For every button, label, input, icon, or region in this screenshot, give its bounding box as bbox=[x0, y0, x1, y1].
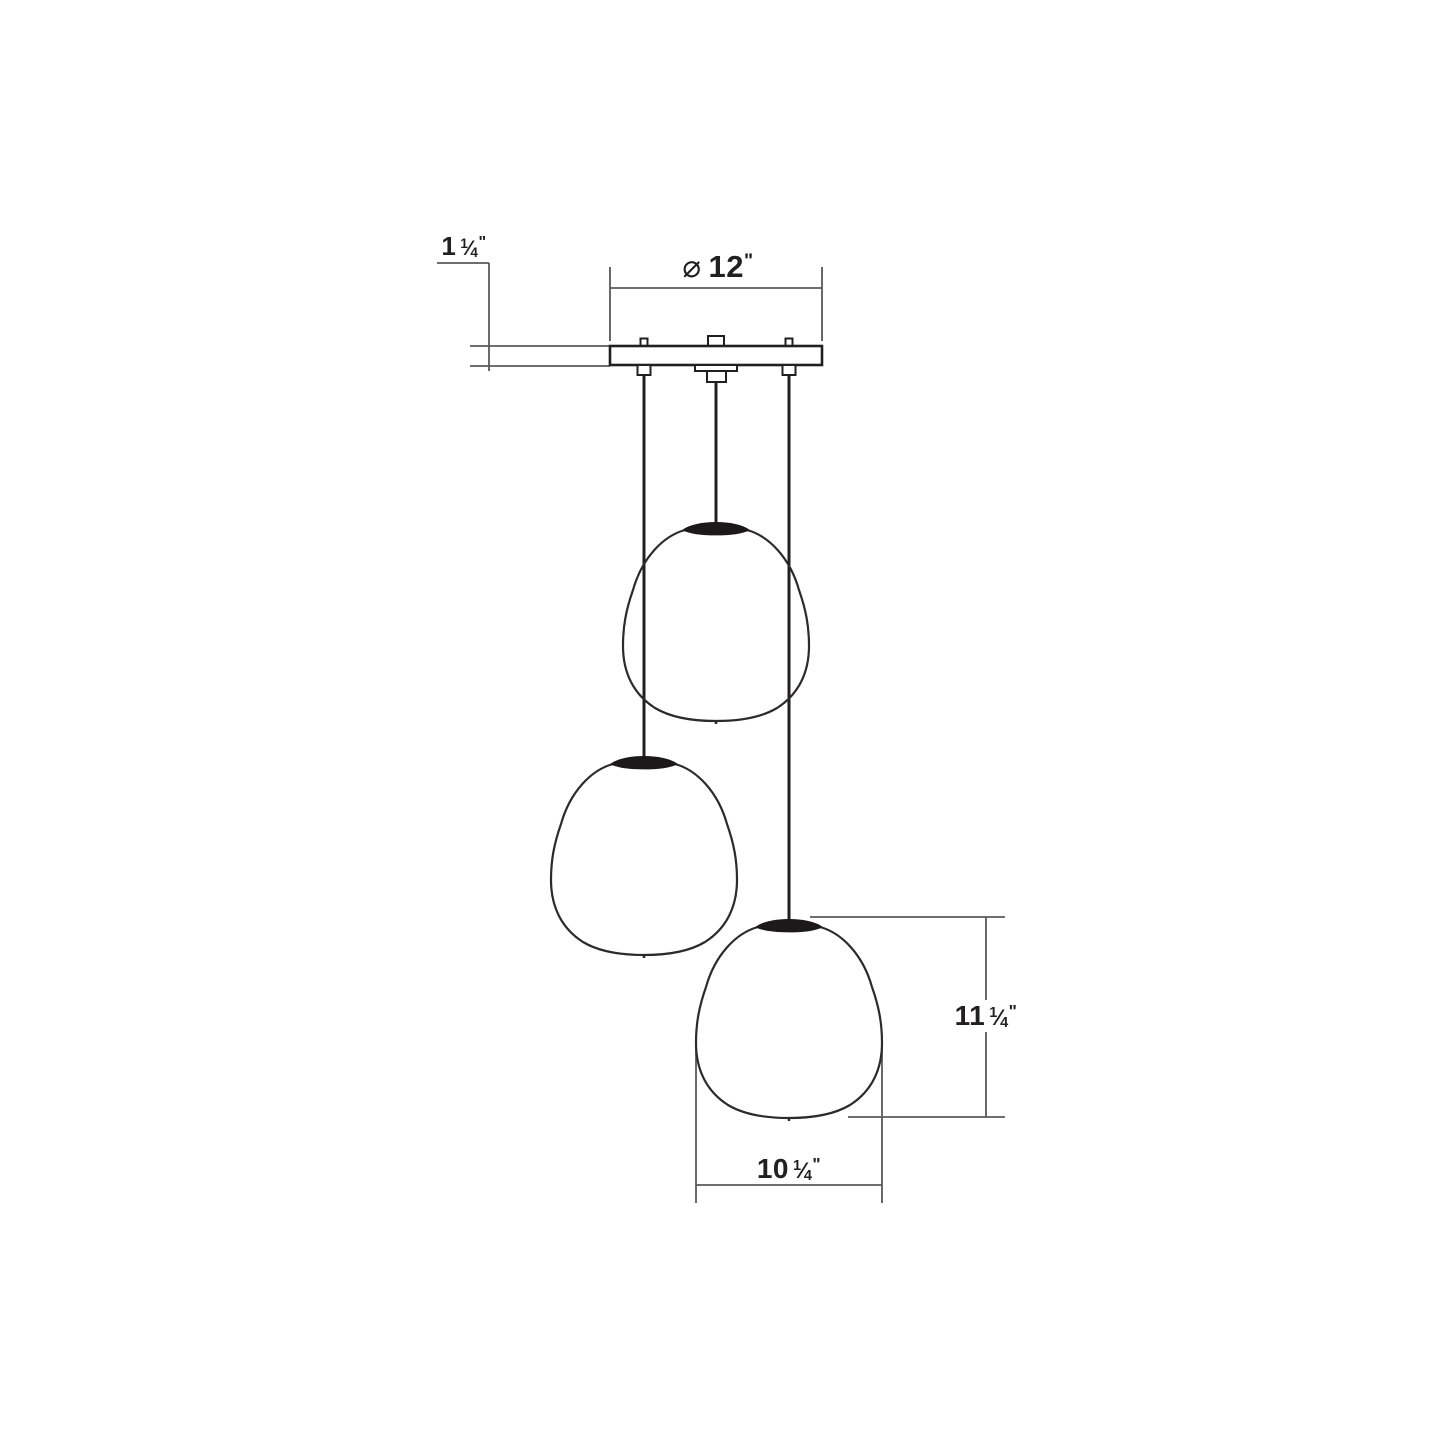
pendant-shade-middle bbox=[551, 757, 737, 959]
canopy-plate bbox=[610, 346, 822, 365]
shade-width-whole: 10 bbox=[757, 1153, 789, 1184]
pendant-cords bbox=[644, 375, 789, 920]
shade-top-cap bbox=[611, 757, 677, 769]
canopy-height-whole: 1 bbox=[441, 231, 456, 261]
diagram-canvas: 11⁄4" ⌀12" 111⁄4" 101⁄4" bbox=[0, 0, 1445, 1445]
shade-glass-outline bbox=[623, 530, 809, 721]
cord-grip-left bbox=[638, 365, 651, 375]
ceiling-canopy bbox=[610, 336, 822, 382]
canopy-mount-center bbox=[708, 336, 724, 346]
shade-glass-outline bbox=[551, 764, 737, 955]
pendant-shade-top bbox=[623, 523, 809, 725]
diameter-value: 12 bbox=[709, 249, 744, 284]
shade-top-cap bbox=[756, 920, 822, 932]
dim-label-canopy-height: 11⁄4" bbox=[409, 233, 519, 260]
shade-height-numerator: 1 bbox=[989, 1005, 998, 1021]
dim-label-shade-height: 111⁄4" bbox=[936, 1000, 1036, 1032]
shade-height-unit: " bbox=[1009, 1001, 1018, 1021]
cord-grip-center bbox=[707, 371, 726, 382]
diameter-symbol: ⌀ bbox=[682, 249, 701, 284]
canopy-height-unit: " bbox=[478, 233, 486, 251]
dim-label-shade-width: 101⁄4" bbox=[729, 1155, 849, 1183]
shade-glass-outline bbox=[696, 927, 882, 1118]
dim-label-canopy-diameter: ⌀12" bbox=[648, 251, 788, 282]
diameter-unit: " bbox=[744, 251, 754, 272]
cord-grip-right bbox=[783, 365, 796, 375]
shade-height-denominator: 4 bbox=[1000, 1015, 1009, 1031]
canopy-height-numerator: 1 bbox=[460, 236, 468, 251]
shade-top-cap bbox=[683, 523, 749, 535]
pendant-diagram-svg bbox=[0, 0, 1445, 1445]
dimension-canopy-height-lines bbox=[437, 263, 610, 371]
shade-width-numerator: 1 bbox=[793, 1158, 802, 1174]
shade-width-unit: " bbox=[812, 1154, 821, 1174]
pendant-shade-bottom bbox=[696, 920, 882, 1122]
shade-height-whole: 11 bbox=[955, 1000, 986, 1031]
